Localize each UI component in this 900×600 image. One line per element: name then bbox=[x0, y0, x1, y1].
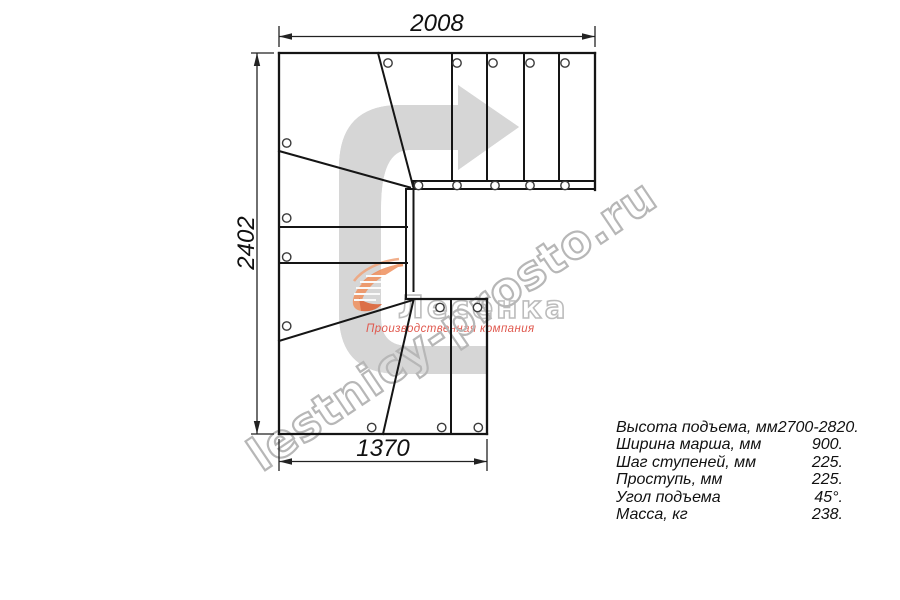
screw-hole bbox=[283, 322, 291, 330]
winder-line bbox=[279, 301, 412, 342]
spec-row: Высота подъема, мм 2700-2820. bbox=[616, 419, 843, 436]
screw-hole bbox=[453, 181, 461, 189]
stair-blueprint-canvas: Лесенка Производственная компания lestni… bbox=[0, 0, 900, 600]
dimension-top-label: 2008 bbox=[409, 10, 464, 37]
screw-hole bbox=[473, 303, 481, 311]
dim-arrow bbox=[254, 53, 260, 66]
dim-arrow bbox=[254, 421, 260, 434]
dimension-left: 2402 bbox=[233, 53, 274, 434]
screw-hole bbox=[561, 181, 569, 189]
spec-label: Шаг ступеней, мм bbox=[616, 454, 756, 471]
spec-value: 238. bbox=[812, 506, 843, 523]
winder-line bbox=[279, 151, 410, 188]
spec-label: Проступь, мм bbox=[616, 471, 722, 488]
spec-row: Масса, кг 238. bbox=[616, 506, 843, 523]
spec-label: Угол подъема bbox=[616, 489, 721, 506]
dimension-bottom: 1370 bbox=[279, 435, 487, 471]
spec-row: Проступь, мм 225. bbox=[616, 471, 843, 488]
screw-hole bbox=[526, 59, 534, 67]
spec-label: Ширина марша, мм bbox=[616, 436, 761, 453]
spec-label: Высота подъема, мм bbox=[616, 419, 778, 436]
screw-holes bbox=[283, 59, 570, 432]
spec-value: 45°. bbox=[814, 489, 843, 506]
spec-label: Масса, кг bbox=[616, 506, 688, 523]
screw-hole bbox=[438, 423, 446, 431]
screw-hole bbox=[453, 59, 461, 67]
spec-row: Ширина марша, мм 900. bbox=[616, 436, 843, 453]
inner-stringer-lines bbox=[406, 181, 595, 299]
winder-line bbox=[383, 300, 414, 434]
spec-value: 225. bbox=[812, 454, 843, 471]
spec-value: 2700-2820. bbox=[778, 419, 859, 436]
dim-arrow bbox=[279, 33, 292, 40]
spec-value: 900. bbox=[812, 436, 843, 453]
winder-line bbox=[378, 53, 413, 186]
stair-outline bbox=[279, 53, 595, 434]
screw-hole bbox=[561, 59, 569, 67]
spec-row: Шаг ступеней, мм 225. bbox=[616, 454, 843, 471]
screw-hole bbox=[414, 181, 422, 189]
dim-arrow bbox=[279, 458, 292, 465]
dimension-top: 2008 bbox=[279, 10, 595, 47]
screw-hole bbox=[283, 253, 291, 261]
screw-hole bbox=[368, 423, 376, 431]
screw-hole bbox=[384, 59, 392, 67]
screw-hole bbox=[283, 214, 291, 222]
spec-row: Угол подъема 45°. bbox=[616, 489, 843, 506]
spec-table: Высота подъема, мм 2700-2820. Ширина мар… bbox=[616, 419, 843, 523]
dimension-bottom-label: 1370 bbox=[356, 435, 410, 462]
screw-hole bbox=[283, 139, 291, 147]
screw-hole bbox=[489, 59, 497, 67]
screw-hole bbox=[491, 181, 499, 189]
dimension-left-label: 2402 bbox=[233, 216, 260, 270]
spec-value: 225. bbox=[812, 471, 843, 488]
tread-lines bbox=[279, 53, 559, 434]
dim-arrow bbox=[474, 458, 487, 465]
screw-hole bbox=[436, 303, 444, 311]
screw-hole bbox=[474, 423, 482, 431]
dim-arrow bbox=[582, 33, 595, 40]
screw-hole bbox=[526, 181, 534, 189]
